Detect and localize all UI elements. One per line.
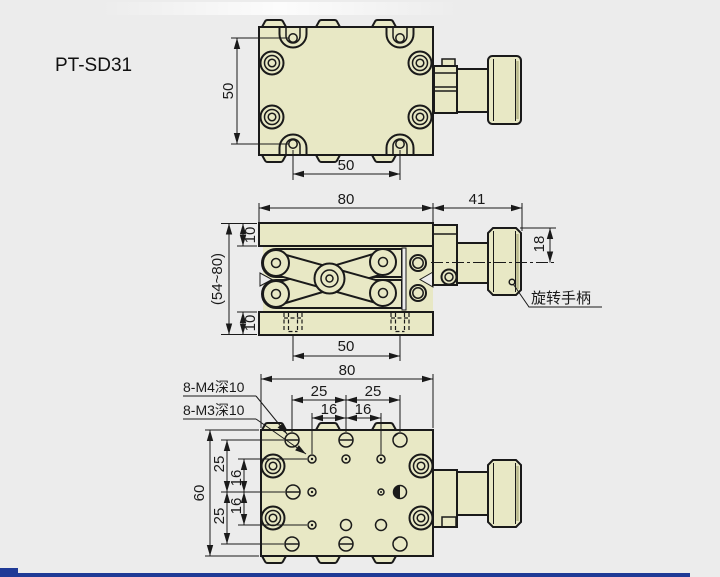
page-title: PT-SD31 (55, 55, 132, 76)
dim-label: 10 (242, 315, 259, 332)
top-plate (259, 223, 433, 246)
dim-label: 18 (531, 236, 548, 253)
slide-gap (402, 248, 406, 310)
dim-label: 25 (211, 456, 228, 473)
dim-label: 16 (228, 498, 245, 515)
pivot (263, 281, 289, 307)
dim-label: 16 (321, 401, 338, 418)
rotary-knob-front (488, 228, 521, 295)
clamp-tab (442, 59, 455, 66)
bottom-plate (259, 312, 433, 335)
rotary-knob-bottom (488, 460, 521, 527)
pivot (263, 250, 289, 276)
dim-label: 25 (211, 508, 228, 525)
drive-shaft (457, 69, 488, 112)
rotary-knob (488, 56, 521, 124)
dim-label: 60 (191, 485, 208, 502)
callout-label: 8-M4深10 (183, 379, 245, 395)
footer-accent-block (0, 568, 18, 577)
center-pivot (315, 264, 345, 294)
drive-shaft-bottom (457, 472, 488, 515)
dim-label: 16 (228, 470, 245, 487)
technical-drawing: PT-SD31 50 (0, 0, 720, 577)
dim-label: 10 (242, 227, 259, 244)
callout-label: 8-M3深10 (183, 402, 245, 418)
dim-label: 50 (220, 83, 237, 100)
dim-label: 25 (311, 383, 328, 400)
handle-mount-block-bottom (433, 470, 457, 527)
dim-label: 41 (469, 191, 486, 208)
dim-label: 50 (338, 157, 355, 174)
dim-label: (54~80) (209, 253, 226, 305)
footer-accent-line (0, 573, 690, 577)
handle-label: 旋转手柄 (531, 290, 591, 307)
pivot (370, 249, 396, 275)
dim-label: 80 (339, 362, 356, 379)
dim-label: 80 (338, 191, 355, 208)
pivot (370, 280, 396, 306)
dim-label: 25 (365, 383, 382, 400)
dim-label: 50 (338, 338, 355, 355)
dim-label: 16 (355, 401, 372, 418)
top-highlight-band (100, 2, 460, 15)
